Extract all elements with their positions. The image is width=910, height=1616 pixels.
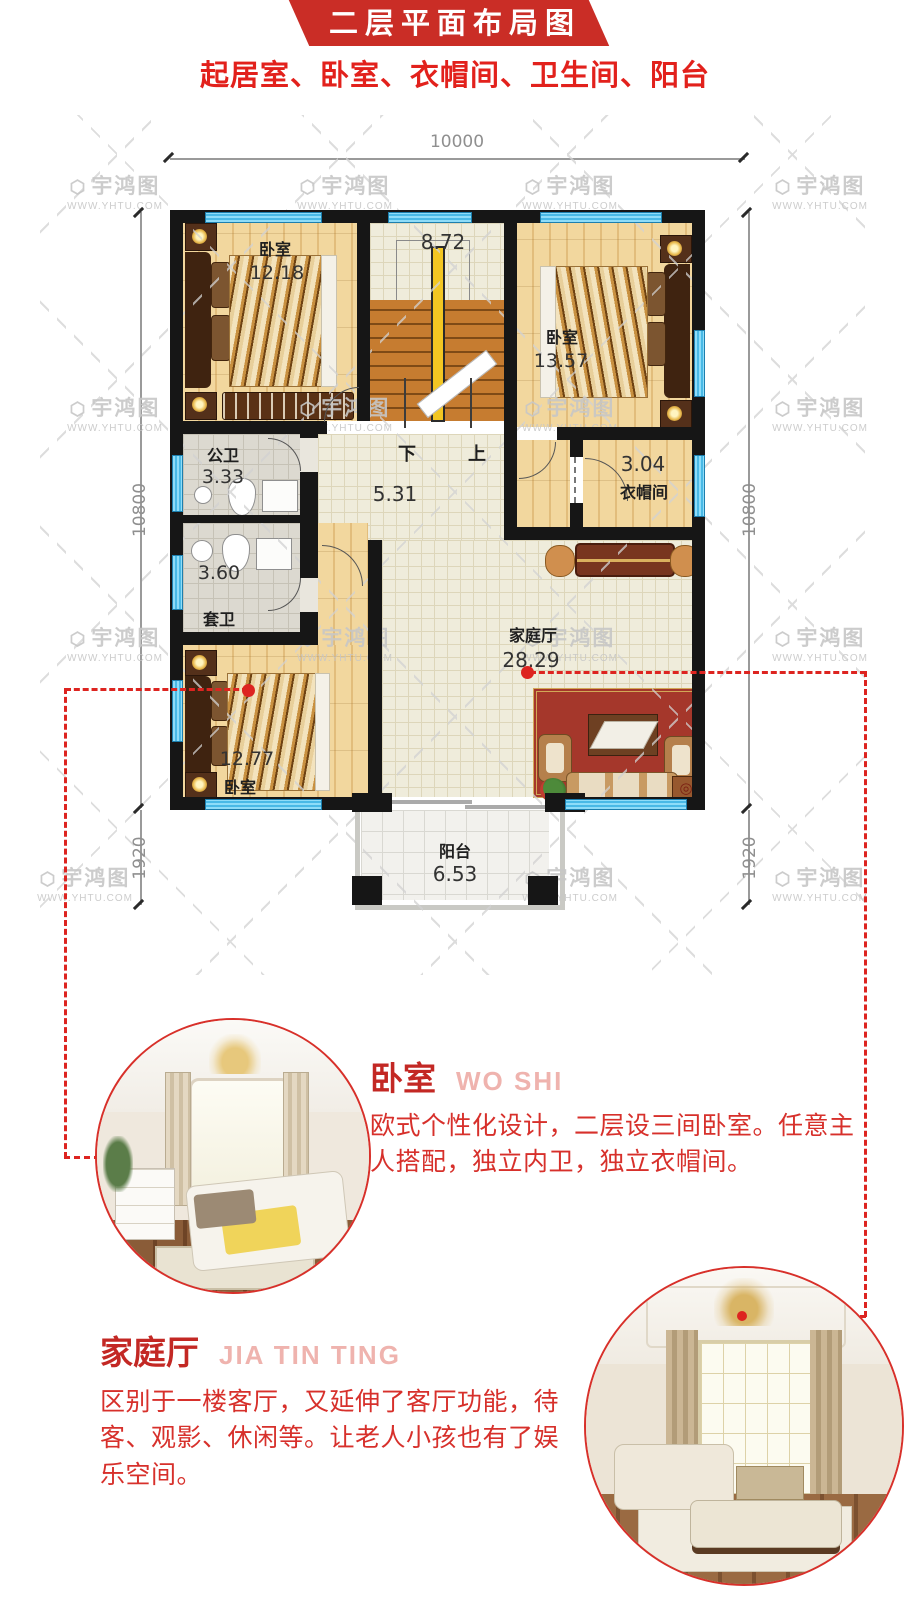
watermark-logo-icon: ⬡ bbox=[70, 399, 88, 420]
section-bedroom: 卧室 WO SHI 欧式个性化设计，二层设三间卧室。任意主人搭配，独立内卫，独立… bbox=[370, 1052, 856, 1181]
family-hall-name: 家庭厅 bbox=[498, 622, 568, 646]
watermark-logo-icon: ⬡ bbox=[70, 629, 88, 650]
window bbox=[205, 799, 322, 810]
dim-height-left: 10800 bbox=[130, 460, 150, 560]
balcony-sliding-door bbox=[392, 800, 472, 804]
watermark-logo-icon: ⬡ bbox=[525, 399, 543, 420]
cloakroom-opening-dash bbox=[574, 457, 576, 503]
bedroom-top-left-area: 12.18 bbox=[242, 262, 312, 284]
watermark: ⬡宇鸿图WWW.YHTU.COM bbox=[40, 170, 190, 212]
balcony-column bbox=[352, 876, 382, 905]
photo-side-table bbox=[736, 1466, 804, 1500]
wall bbox=[504, 223, 517, 540]
watermark-logo-icon: ⬡ bbox=[70, 177, 88, 198]
callout-line bbox=[64, 688, 67, 1158]
watermark: ⬡宇鸿图WWW.YHTU.COM bbox=[40, 622, 190, 664]
watermark: ⬡宇鸿图WWW.YHTU.COM bbox=[495, 862, 645, 904]
stair-up-label: 上 bbox=[462, 440, 492, 466]
wall bbox=[183, 515, 300, 523]
page: 二层平面布局图 起居室、卧室、衣帽间、卫生间、阳台 ⬡宇鸿图WWW.YHTU.C… bbox=[0, 0, 910, 1616]
window bbox=[172, 455, 183, 512]
callout-line bbox=[65, 688, 248, 691]
bedroom-bottom-area: 12.77 bbox=[212, 748, 282, 770]
photo-bench bbox=[690, 1500, 842, 1548]
callout-dot-photo bbox=[737, 1311, 747, 1321]
callout-dot-bedroom bbox=[242, 684, 255, 697]
section-family-hall-body: 区别于一楼客厅，又延伸了客厅功能，待客、观影、休闲等。让老人小孩也有了娱乐空间。 bbox=[100, 1384, 560, 1493]
ensuite-bath-name: 套卫 bbox=[192, 606, 246, 630]
balcony-sliding-door bbox=[465, 805, 545, 809]
window bbox=[388, 212, 472, 223]
watermark-logo-icon: ⬡ bbox=[300, 399, 318, 420]
watermark-logo-icon: ⬡ bbox=[775, 629, 793, 650]
bedroom-top-right-area: 13.57 bbox=[526, 350, 596, 372]
balcony-name: 阳台 bbox=[420, 838, 490, 862]
door-gap bbox=[300, 438, 318, 472]
wall bbox=[570, 427, 583, 457]
photo-plant bbox=[103, 1136, 133, 1192]
photo-chandelier bbox=[209, 1034, 261, 1074]
door-gap bbox=[300, 578, 318, 612]
callout-line bbox=[864, 671, 867, 1317]
bedroom-top-right-name: 卧室 bbox=[532, 324, 592, 348]
callout-dot-family bbox=[521, 666, 534, 679]
dim-height-right: 10800 bbox=[740, 460, 760, 560]
watermark-logo-icon: ⬡ bbox=[525, 177, 543, 198]
section-family-hall-title: 家庭厅 bbox=[100, 1326, 199, 1374]
watermark-logo-icon: ⬡ bbox=[775, 399, 793, 420]
wall bbox=[170, 421, 327, 434]
watermark-logo-icon: ⬡ bbox=[775, 869, 793, 890]
wall bbox=[517, 527, 692, 540]
bedroom-bottom-name: 卧室 bbox=[210, 774, 270, 798]
balcony-column bbox=[528, 876, 558, 905]
dim-width: 10000 bbox=[412, 132, 502, 152]
section-bedroom-body: 欧式个性化设计，二层设三间卧室。任意主人搭配，独立内卫，独立衣帽间。 bbox=[370, 1108, 856, 1181]
wall bbox=[368, 540, 382, 797]
section-bedroom-pinyin: WO SHI bbox=[456, 1066, 563, 1097]
window bbox=[694, 330, 705, 397]
bedroom-top-left-name: 卧室 bbox=[245, 236, 305, 260]
window bbox=[205, 212, 322, 223]
section-bedroom-title: 卧室 bbox=[370, 1052, 436, 1100]
wall bbox=[170, 632, 318, 645]
public-bath-area: 3.33 bbox=[196, 466, 250, 488]
dim-balcony-right: 1920 bbox=[740, 818, 760, 898]
section-family-hall-pinyin: JIA TIN TING bbox=[219, 1340, 401, 1371]
photo-curtain bbox=[810, 1330, 842, 1494]
balcony-area: 6.53 bbox=[420, 862, 490, 886]
watermark: ⬡宇鸿图WWW.YHTU.COM bbox=[745, 170, 895, 212]
watermark: ⬡宇鸿图WWW.YHTU.COM bbox=[40, 392, 190, 434]
cloakroom-name: 衣帽间 bbox=[604, 479, 684, 503]
page-title: 二层平面布局图 bbox=[285, 0, 625, 46]
watermark-logo-icon: ⬡ bbox=[40, 869, 58, 890]
photo-bed-blanket bbox=[193, 1189, 256, 1229]
stairwell-area: 8.72 bbox=[408, 230, 478, 254]
watermark: ⬡宇鸿图WWW.YHTU.COM bbox=[745, 392, 895, 434]
window bbox=[540, 212, 662, 223]
watermark-logo-icon: ⬡ bbox=[300, 177, 318, 198]
window bbox=[565, 799, 687, 810]
public-bath-name: 公卫 bbox=[196, 442, 250, 466]
bedroom-photo bbox=[95, 1018, 371, 1294]
section-family-hall: 家庭厅 JIA TIN TING 区别于一楼客厅，又延伸了客厅功能，待客、观影、… bbox=[100, 1326, 560, 1493]
stair-down-label: 下 bbox=[392, 440, 422, 466]
dim-balcony-left: 1920 bbox=[130, 818, 150, 898]
watermark: ⬡宇鸿图WWW.YHTU.COM bbox=[745, 622, 895, 664]
hallway-area: 5.31 bbox=[365, 482, 425, 506]
title-banner: 二层平面布局图 bbox=[285, 0, 625, 46]
callout-line bbox=[530, 671, 866, 674]
watermark: ⬡宇鸿图WWW.YHTU.COM bbox=[270, 170, 420, 212]
page-subtitle: 起居室、卧室、衣帽间、卫生间、阳台 bbox=[0, 52, 910, 94]
cloakroom-area: 3.04 bbox=[608, 452, 678, 476]
window bbox=[694, 455, 705, 517]
watermark: ⬡宇鸿图WWW.YHTU.COM bbox=[745, 862, 895, 904]
watermark: ⬡宇鸿图WWW.YHTU.COM bbox=[495, 170, 645, 212]
window bbox=[172, 555, 183, 610]
watermark-logo-icon: ⬡ bbox=[775, 177, 793, 198]
ensuite-bath-area: 3.60 bbox=[192, 562, 246, 584]
